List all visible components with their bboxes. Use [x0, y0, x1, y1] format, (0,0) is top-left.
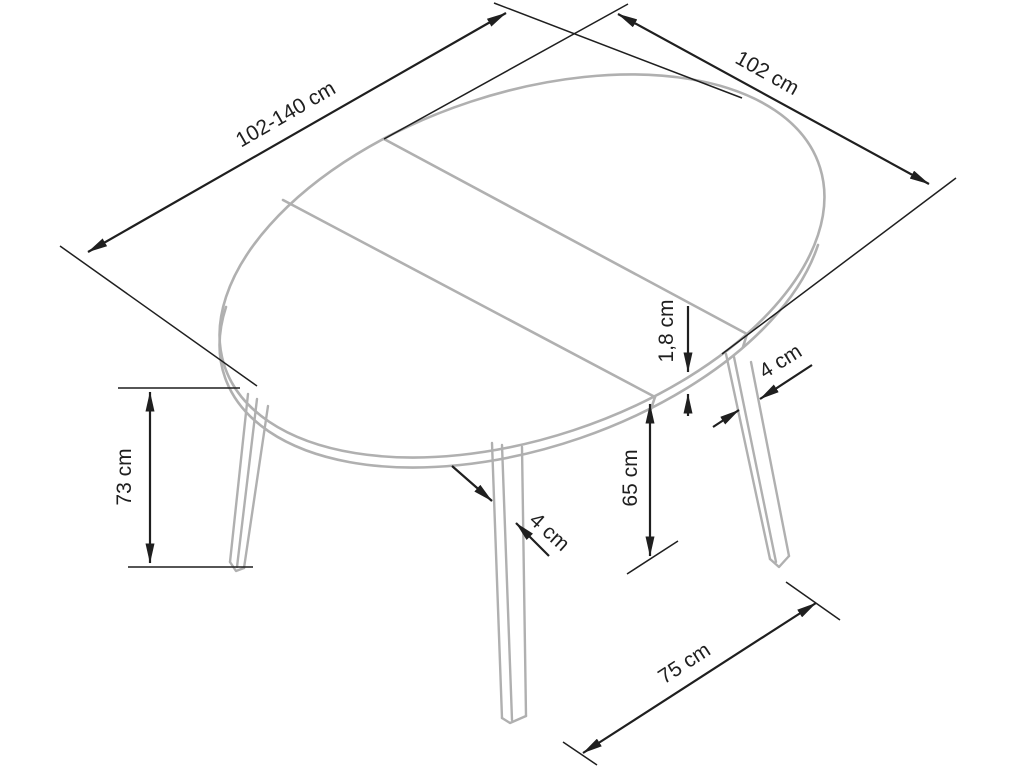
extension-line	[384, 4, 628, 139]
diagram-canvas: 102-140 cm 102 cm 1,8 cm 4 cm 73 cm	[0, 0, 1024, 768]
leg-front-foot	[502, 716, 526, 723]
dim-label-leg-right: 4 cm	[755, 340, 806, 384]
extension-line	[60, 246, 257, 386]
leg-rear-right-foot	[770, 556, 789, 567]
extension-line	[786, 582, 840, 620]
dim-label-height: 73 cm	[113, 448, 136, 505]
dim-leg-width-front: 4 cm	[452, 466, 574, 556]
dimension-arrow	[452, 466, 492, 501]
leg-front	[492, 443, 526, 723]
extension-line	[722, 178, 956, 354]
leg-rear-left	[230, 394, 268, 571]
extension-leaf-seam-front	[283, 200, 655, 397]
dim-tabletop-width-extended: 102-140 cm	[60, 3, 742, 386]
dim-label-leg-front: 4 cm	[525, 508, 574, 556]
dim-leg-width-right: 4 cm	[713, 340, 812, 427]
dim-label-width: 102-140 cm	[232, 77, 340, 152]
furniture-dimension-diagram: 102-140 cm 102 cm 1,8 cm 4 cm 73 cm	[0, 0, 1024, 768]
dimension-arrow	[618, 14, 929, 184]
dim-leg-spacing: 75 cm	[563, 582, 840, 765]
extension-leaf-seam-rear	[384, 139, 747, 334]
dimension-arrow	[713, 410, 739, 427]
dim-label-thickness: 1,8 cm	[655, 299, 678, 362]
dim-underside-clearance: 65 cm	[619, 404, 678, 574]
dimension-arrow	[88, 13, 506, 252]
dim-label-clearance: 65 cm	[619, 449, 642, 506]
tabletop-rim-edge	[220, 245, 818, 468]
dimension-arrow	[583, 603, 816, 753]
extension-line	[494, 3, 742, 98]
extension-line	[563, 742, 597, 765]
reference-line-floor	[627, 541, 678, 574]
dim-label-spacing: 75 cm	[654, 638, 714, 688]
